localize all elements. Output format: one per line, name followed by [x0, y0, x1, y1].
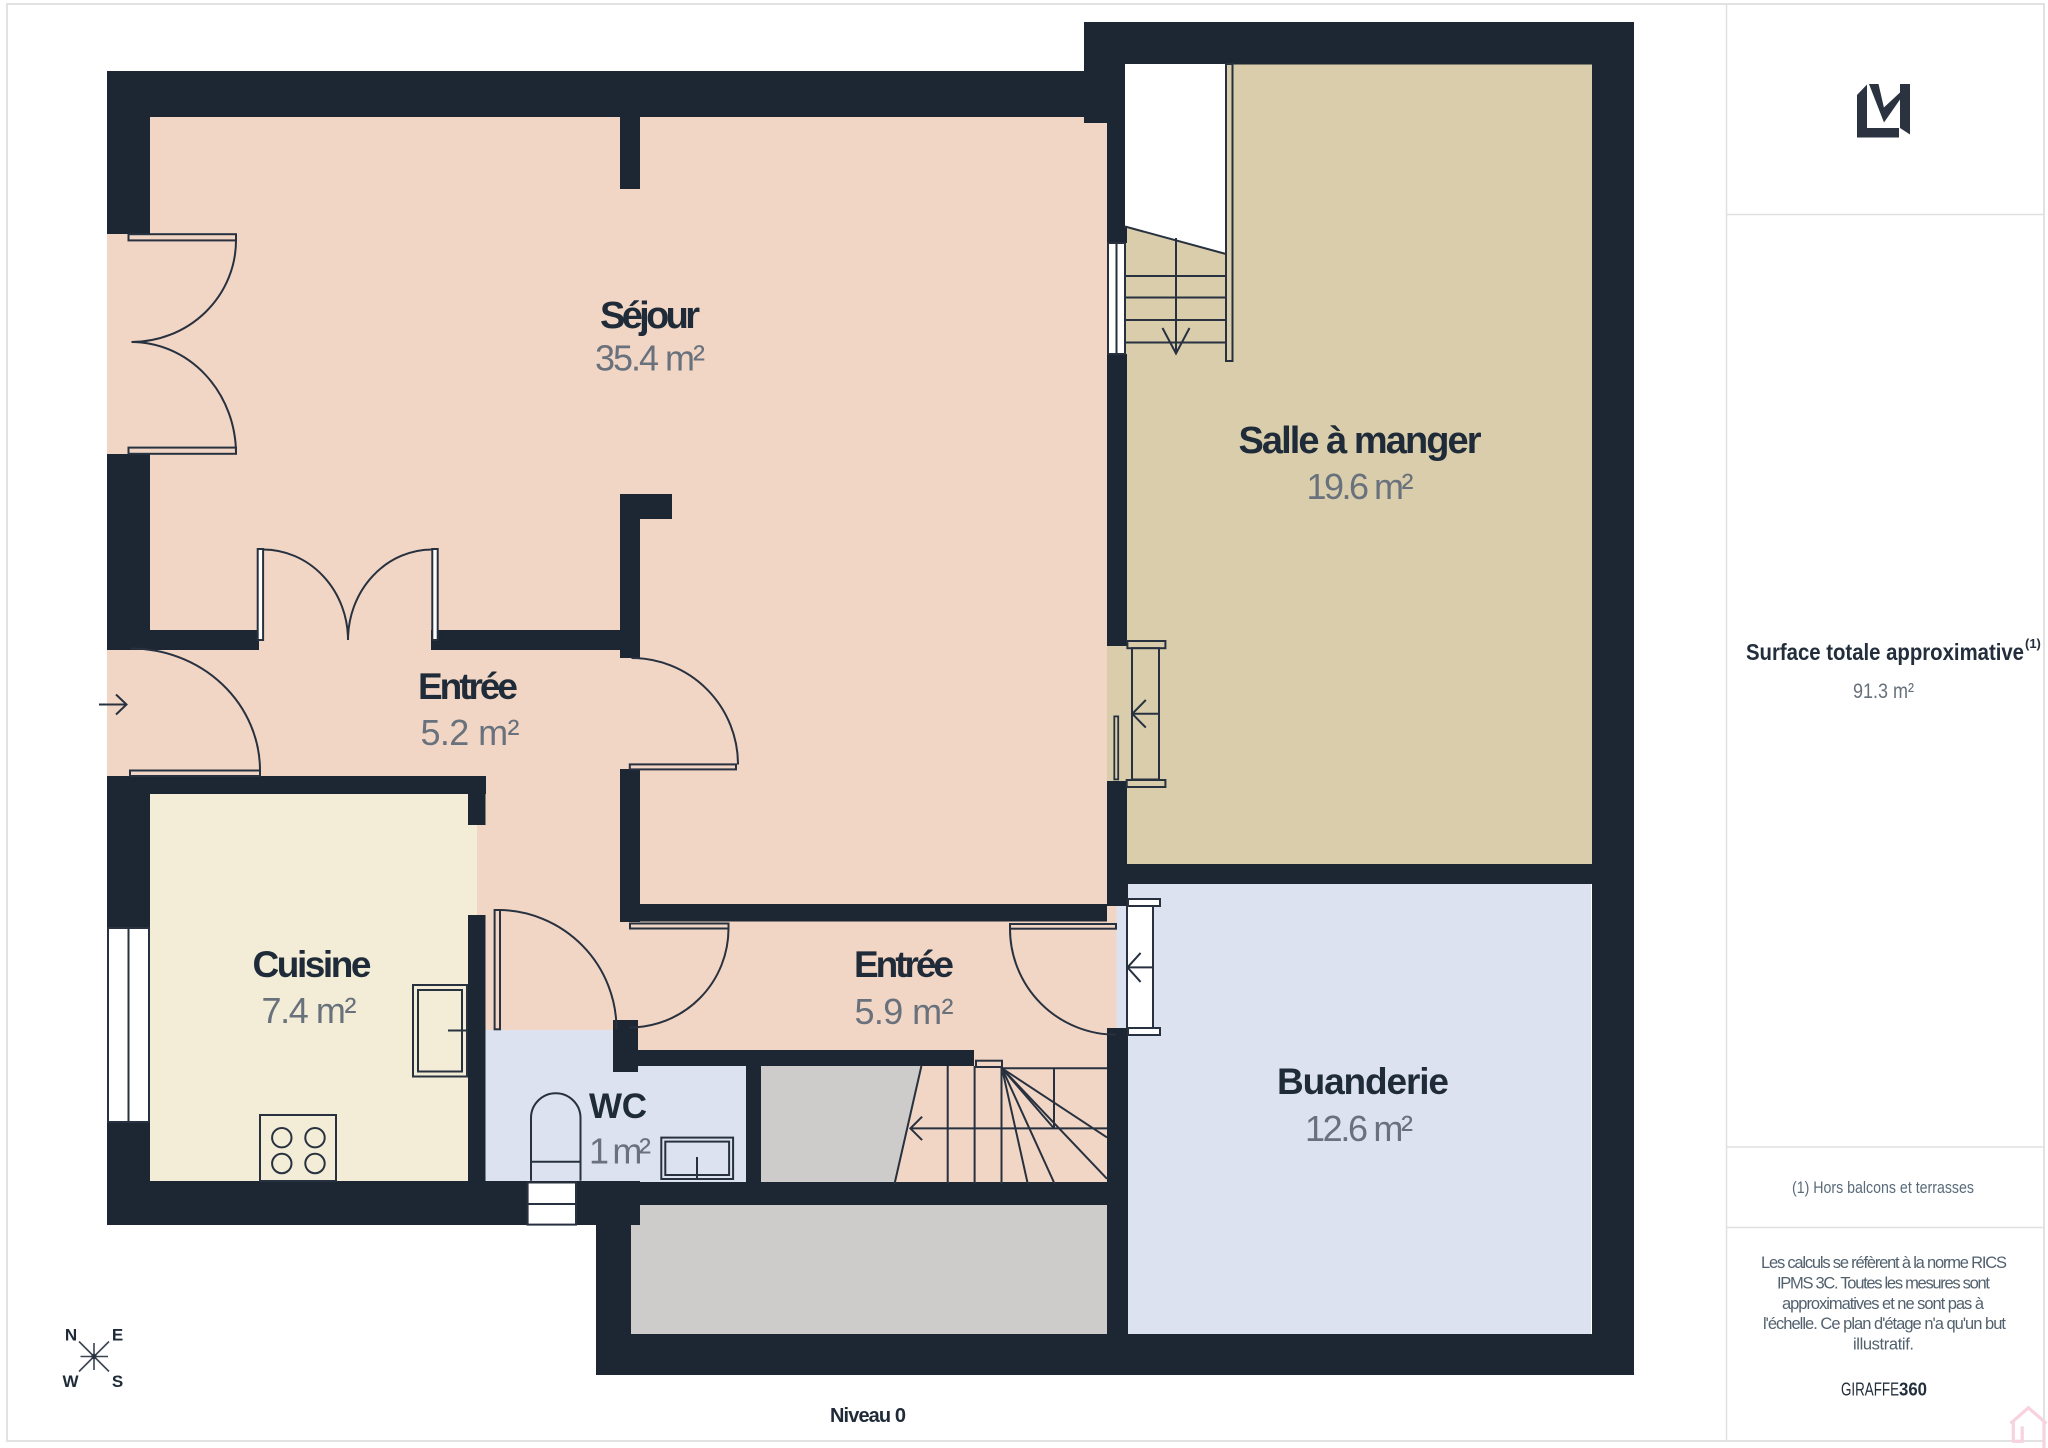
svg-text:1 m²: 1 m² — [589, 1131, 651, 1172]
svg-text:35.4 m²: 35.4 m² — [595, 338, 705, 379]
svg-text:N: N — [65, 1326, 77, 1345]
svg-text:l'échelle. Ce plan d'étage n'a: l'échelle. Ce plan d'étage n'a qu'un but — [1763, 1315, 2006, 1333]
svg-text:Salle à manger: Salle à manger — [1239, 420, 1482, 462]
svg-text:(1): (1) — [2025, 636, 2041, 651]
svg-text:E: E — [112, 1326, 123, 1345]
svg-text:Niveau 0: Niveau 0 — [830, 1405, 906, 1427]
svg-text:Cuisine: Cuisine — [253, 944, 372, 985]
svg-text:5.2 m²: 5.2 m² — [421, 712, 520, 753]
svg-text:7.4 m²: 7.4 m² — [262, 990, 357, 1031]
svg-text:Entrée: Entrée — [418, 666, 518, 707]
svg-text:Surface totale approximative: Surface totale approximative — [1746, 639, 2024, 665]
svg-text:12.6 m²: 12.6 m² — [1305, 1108, 1413, 1149]
svg-text:Entrée: Entrée — [854, 944, 954, 985]
svg-text:illustratif.: illustratif. — [1853, 1336, 1914, 1354]
svg-text:Les calculs se réfèrent à la n: Les calculs se réfèrent à la norme RICS — [1761, 1254, 2007, 1272]
svg-text:Séjour: Séjour — [600, 295, 700, 337]
svg-text:360: 360 — [1899, 1380, 1927, 1400]
svg-text:WC: WC — [589, 1087, 647, 1126]
svg-text:W: W — [62, 1372, 79, 1391]
svg-text:Buanderie: Buanderie — [1277, 1061, 1449, 1102]
svg-text:91.3 m²: 91.3 m² — [1853, 680, 1914, 703]
svg-text:approximatives et ne sont pas: approximatives et ne sont pas à — [1782, 1295, 1985, 1313]
svg-text:IPMS 3C. Toutes les mesures so: IPMS 3C. Toutes les mesures sont — [1777, 1274, 1990, 1292]
svg-text:19.6 m²: 19.6 m² — [1307, 466, 1414, 507]
svg-text:(1) Hors balcons et terrasses: (1) Hors balcons et terrasses — [1792, 1179, 1974, 1197]
svg-text:GIRAFFE: GIRAFFE — [1841, 1380, 1899, 1400]
svg-text:5.9 m²: 5.9 m² — [855, 991, 954, 1032]
svg-text:S: S — [112, 1372, 123, 1391]
